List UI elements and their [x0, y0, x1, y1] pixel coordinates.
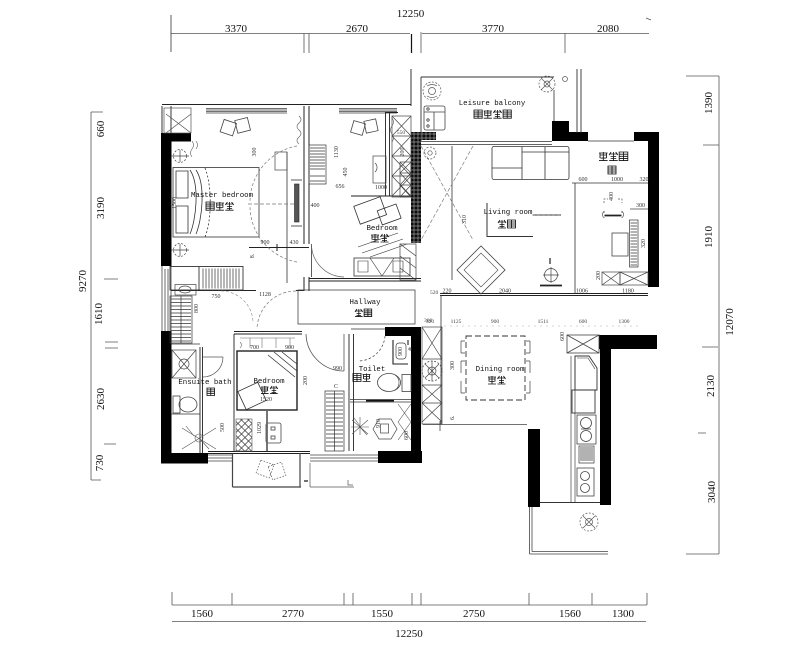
svg-text:990: 990	[333, 366, 342, 372]
svg-text:2630: 2630	[95, 388, 107, 411]
svg-text:8.: 8.	[250, 253, 256, 258]
svg-text:12250: 12250	[397, 8, 425, 20]
svg-text:1130: 1130	[334, 146, 340, 158]
svg-text:656: 656	[336, 184, 345, 190]
svg-text:1128: 1128	[259, 292, 271, 298]
svg-text:300: 300	[636, 203, 645, 209]
svg-text:450: 450	[343, 168, 349, 177]
svg-text:2770: 2770	[282, 608, 305, 620]
svg-text:3370: 3370	[225, 23, 248, 35]
svg-text:1511: 1511	[538, 319, 549, 325]
svg-text:750: 750	[212, 294, 221, 300]
svg-text:Toilet: Toilet	[359, 366, 386, 374]
svg-text:Bedroom: Bedroom	[366, 225, 398, 233]
svg-text:1000: 1000	[611, 177, 623, 183]
svg-text:200: 200	[303, 376, 309, 385]
svg-text:300: 300	[450, 361, 456, 370]
svg-text:1550: 1550	[371, 608, 394, 620]
svg-text:910: 910	[376, 419, 382, 428]
svg-text:730: 730	[94, 454, 106, 471]
svg-text:900: 900	[491, 319, 500, 325]
svg-text:300: 300	[252, 148, 258, 157]
svg-text:800: 800	[194, 304, 200, 313]
svg-text:1910: 1910	[703, 226, 715, 249]
svg-text:600: 600	[579, 319, 588, 325]
svg-text:Bedroom: Bedroom	[253, 378, 285, 386]
svg-text:Dining room: Dining room	[476, 366, 525, 374]
svg-text:Leisure balcony: Leisure balcony	[459, 100, 526, 108]
svg-text:2670: 2670	[346, 23, 369, 35]
svg-text:320: 320	[426, 319, 435, 325]
svg-text:400: 400	[311, 203, 320, 209]
svg-text:2080: 2080	[597, 23, 620, 35]
svg-text:600: 600	[404, 431, 410, 440]
svg-text:12070: 12070	[724, 308, 736, 336]
svg-text:1610: 1610	[93, 303, 105, 326]
svg-text:550: 550	[397, 130, 406, 136]
svg-text:1300: 1300	[612, 608, 635, 620]
svg-text:320: 320	[640, 177, 649, 183]
svg-text:1560: 1560	[559, 608, 582, 620]
svg-text:Master bedroom: Master bedroom	[191, 192, 254, 200]
svg-text:2750: 2750	[463, 608, 486, 620]
svg-text:600: 600	[579, 177, 588, 183]
svg-text:900: 900	[398, 347, 404, 356]
svg-text:2040: 2040	[499, 289, 511, 295]
svg-text:660: 660	[95, 120, 107, 137]
svg-text:1006: 1006	[576, 289, 588, 295]
svg-text:9270: 9270	[77, 270, 89, 293]
svg-text:1180: 1180	[622, 289, 634, 295]
svg-text:2130: 2130	[705, 375, 717, 398]
svg-text:1300: 1300	[619, 319, 630, 325]
svg-text:Ensuite bath: Ensuite bath	[178, 379, 231, 387]
svg-text:12250: 12250	[395, 628, 423, 640]
svg-text:1000: 1000	[375, 185, 387, 191]
svg-text:320: 320	[641, 239, 647, 248]
svg-text:200: 200	[596, 271, 602, 280]
svg-text:900: 900	[261, 240, 270, 246]
svg-text:C: C	[334, 384, 338, 390]
svg-text:430: 430	[290, 240, 299, 246]
svg-text:1560: 1560	[191, 608, 214, 620]
svg-text:6.: 6.	[450, 415, 456, 420]
svg-text:310: 310	[462, 215, 468, 224]
svg-text:400: 400	[609, 192, 615, 201]
svg-text:1390: 1390	[703, 92, 715, 115]
svg-text:220: 220	[443, 289, 452, 295]
svg-text:1500: 1500	[172, 197, 178, 209]
svg-text:900: 900	[285, 345, 294, 351]
svg-text:1125: 1125	[451, 319, 462, 325]
svg-text:Living room: Living room	[484, 209, 533, 217]
svg-text:600: 600	[560, 332, 566, 341]
svg-text:200: 200	[400, 148, 406, 157]
svg-text:3190: 3190	[95, 197, 107, 220]
svg-text:1029: 1029	[257, 422, 263, 434]
svg-text:520: 520	[430, 290, 439, 296]
svg-text:Hallway: Hallway	[349, 299, 381, 307]
svg-text:1520: 1520	[260, 397, 272, 403]
svg-text:3770: 3770	[482, 23, 505, 35]
svg-text:700: 700	[250, 345, 259, 351]
svg-text:500: 500	[220, 423, 226, 432]
svg-text:3040: 3040	[706, 481, 718, 504]
